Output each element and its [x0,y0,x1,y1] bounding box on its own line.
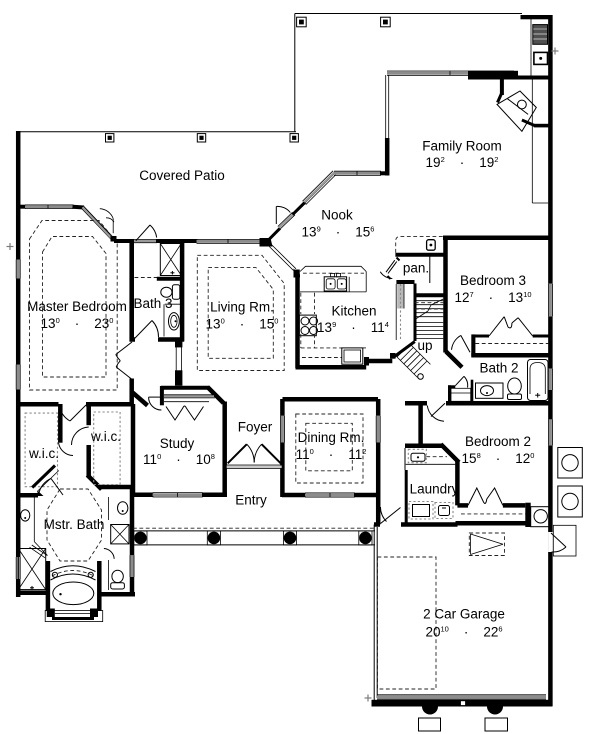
svg-text:Bath 3: Bath 3 [133,296,172,311]
svg-text:w.i.c.: w.i.c. [90,429,121,444]
svg-text:Master Bedroom: Master Bedroom [27,299,127,314]
svg-text:110 · 112: 110 · 112 [296,447,367,462]
svg-text:2010 · 226: 2010 · 226 [425,625,502,640]
svg-text:130 · 230: 130 · 230 [41,316,114,331]
svg-text:Laundry: Laundry [410,482,459,497]
svg-text:139 · 114: 139 · 114 [317,320,389,335]
svg-text:Living Rm.: Living Rm. [210,300,274,315]
svg-text:Bath 2: Bath 2 [479,361,518,376]
svg-text:Covered Patio: Covered Patio [139,168,225,183]
svg-text:up: up [417,338,432,353]
svg-text:127 · 1310: 127 · 1310 [454,290,531,305]
svg-text:Study: Study [160,436,195,451]
svg-text:Foyer: Foyer [238,420,273,435]
svg-text:158 · 120: 158 · 120 [462,451,535,466]
svg-text:Family Room: Family Room [422,139,502,154]
svg-text:Bedroom 2: Bedroom 2 [465,434,531,449]
svg-text:Dining Rm.: Dining Rm. [298,430,365,445]
svg-text:2 Car Garage: 2 Car Garage [423,607,505,622]
svg-text:Nook: Nook [321,208,353,223]
svg-text:110 · 108: 110 · 108 [143,452,215,467]
svg-text:130 · 150: 130 · 150 [206,317,279,332]
svg-text:pan.: pan. [403,261,429,276]
svg-text:Bedroom 3: Bedroom 3 [460,273,526,288]
svg-text:Mstr. Bath: Mstr. Bath [44,517,105,532]
svg-text:Entry: Entry [235,493,267,508]
svg-text:192 · 192: 192 · 192 [426,155,499,170]
svg-text:w.i.c.: w.i.c. [28,446,59,461]
svg-text:Kitchen: Kitchen [331,304,376,319]
svg-text:139 · 156: 139 · 156 [302,225,375,240]
